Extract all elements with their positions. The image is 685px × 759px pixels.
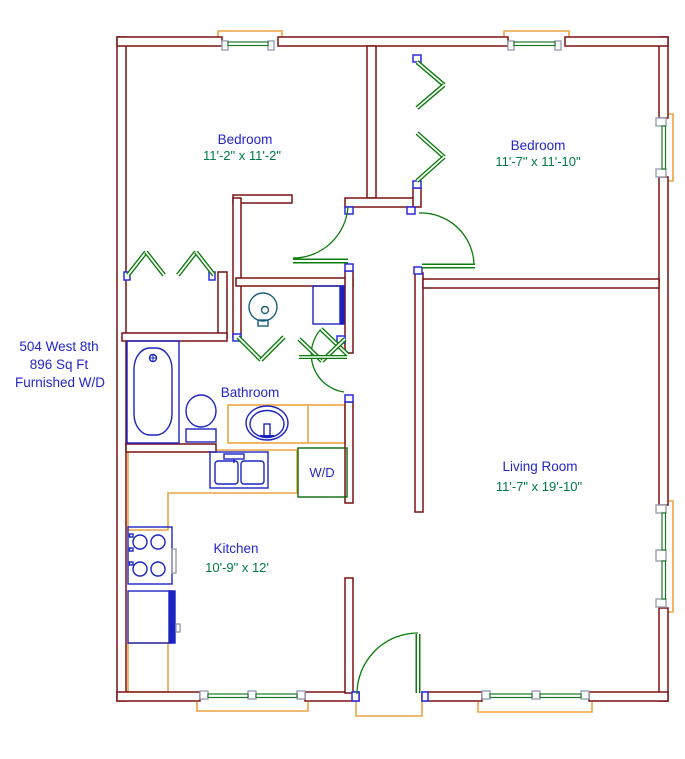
wall-bedroom1-right <box>367 46 376 198</box>
washer-dryer-label: W/D <box>309 465 334 480</box>
wall-exterior-top <box>565 37 668 46</box>
entry-threshold <box>356 701 422 716</box>
vanity-sink <box>246 406 288 440</box>
wall-exterior-right <box>659 37 668 118</box>
counters-and-sills <box>128 31 673 716</box>
walls <box>117 37 668 701</box>
bedroom1-dims: 11'-2" x 11'-2" <box>203 148 281 163</box>
stove <box>128 527 176 584</box>
wall-bedroom2-south <box>423 279 659 288</box>
window-sill <box>478 702 592 712</box>
entry-door-arc <box>357 633 418 694</box>
bathtub <box>127 341 179 443</box>
wall-exterior-bottom <box>117 692 200 701</box>
wall-hall-top <box>345 198 415 207</box>
bedroom1-label: Bedroom <box>218 132 273 147</box>
wall-closet2-stub <box>413 188 421 207</box>
kitchen-label: Kitchen <box>213 541 258 556</box>
wall-exterior-right <box>659 608 668 701</box>
bedroom1-door-arc <box>293 207 348 258</box>
window-glass <box>208 42 666 698</box>
wall-exterior-top <box>278 37 508 46</box>
water-heater <box>249 293 277 326</box>
wall-exterior-bottom <box>589 692 668 701</box>
wall-bath-right-b <box>345 402 353 503</box>
kitchen-sink <box>210 452 268 488</box>
floor-plan: 504 West 8th 896 Sq Ft Furnished W/D Bed… <box>0 0 685 759</box>
address-line1: 504 West 8th <box>19 339 98 354</box>
closet-bifold-doors <box>128 62 444 361</box>
bedroom2-dims: 11'-7" x 11'-10" <box>495 154 581 169</box>
wall-closet1-right <box>218 272 227 338</box>
wall-hall-right <box>415 273 423 512</box>
labels: 504 West 8th 896 Sq Ft Furnished W/D Bed… <box>15 132 583 575</box>
floor-plan-svg: 504 West 8th 896 Sq Ft Furnished W/D Bed… <box>0 0 685 759</box>
wall-exterior-bottom <box>422 692 482 701</box>
bedroom2-door-arc <box>419 213 474 264</box>
refrigerator <box>128 591 180 643</box>
window-sill <box>197 702 308 711</box>
shower-cabinet <box>313 286 344 324</box>
wall-bath-kitchen <box>126 444 216 452</box>
bathroom-label: Bathroom <box>221 385 280 400</box>
kitchen-counter <box>128 450 297 530</box>
wall-exterior-left <box>117 37 126 701</box>
living-room-dims: 11'-7" x 19'-10" <box>496 479 583 494</box>
kitchen-counter-lower <box>128 643 168 692</box>
wall-exterior-top <box>117 37 222 46</box>
wall-utility-left <box>233 198 241 338</box>
wall-bedroom1-south <box>233 195 292 203</box>
wall-exterior-right <box>659 177 668 505</box>
wall-kitchen-right <box>345 578 353 693</box>
address-line3: Furnished W/D <box>15 375 105 390</box>
toilet <box>186 395 216 442</box>
bedroom2-label: Bedroom <box>511 138 566 153</box>
living-room-label: Living Room <box>502 459 577 474</box>
kitchen-dims: 10'-9" x 12' <box>205 560 269 575</box>
wall-utility-top <box>236 278 353 286</box>
wall-closet1-bottom <box>122 333 227 341</box>
address-line2: 896 Sq Ft <box>30 357 89 372</box>
